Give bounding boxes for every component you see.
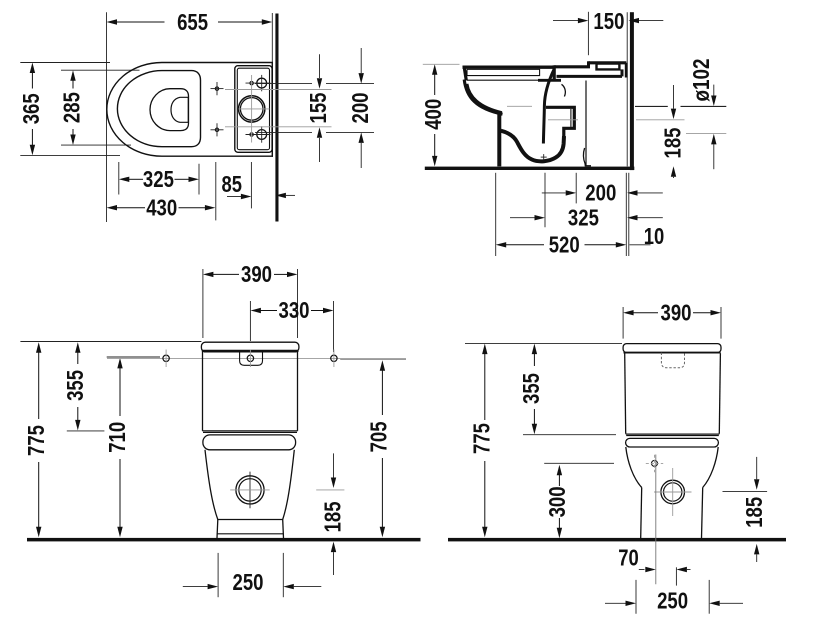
svg-text:70: 70 <box>618 545 639 571</box>
svg-text:330: 330 <box>279 297 310 323</box>
svg-text:355: 355 <box>518 373 544 404</box>
svg-text:355: 355 <box>62 370 88 401</box>
svg-text:325: 325 <box>568 204 599 230</box>
svg-text:365: 365 <box>18 93 44 124</box>
svg-text:300: 300 <box>544 486 570 517</box>
svg-text:430: 430 <box>146 194 177 220</box>
svg-text:390: 390 <box>241 261 272 287</box>
svg-text:705: 705 <box>366 421 392 452</box>
svg-text:185: 185 <box>741 497 767 528</box>
svg-text:ø102: ø102 <box>688 59 714 102</box>
svg-text:655: 655 <box>177 9 208 35</box>
svg-text:775: 775 <box>23 425 49 456</box>
svg-text:200: 200 <box>347 93 373 124</box>
svg-text:520: 520 <box>549 232 580 258</box>
svg-text:10: 10 <box>644 223 665 249</box>
svg-text:185: 185 <box>660 127 686 158</box>
svg-text:250: 250 <box>233 569 264 595</box>
svg-text:285: 285 <box>59 92 85 123</box>
svg-text:325: 325 <box>143 166 174 192</box>
svg-text:155: 155 <box>305 92 331 123</box>
svg-text:185: 185 <box>320 501 346 532</box>
svg-text:85: 85 <box>222 171 243 197</box>
svg-text:390: 390 <box>661 299 692 325</box>
svg-text:200: 200 <box>585 180 616 206</box>
svg-text:400: 400 <box>420 99 446 130</box>
svg-text:150: 150 <box>593 8 624 34</box>
svg-text:250: 250 <box>657 588 688 614</box>
svg-text:710: 710 <box>104 422 130 453</box>
svg-text:775: 775 <box>469 423 495 454</box>
